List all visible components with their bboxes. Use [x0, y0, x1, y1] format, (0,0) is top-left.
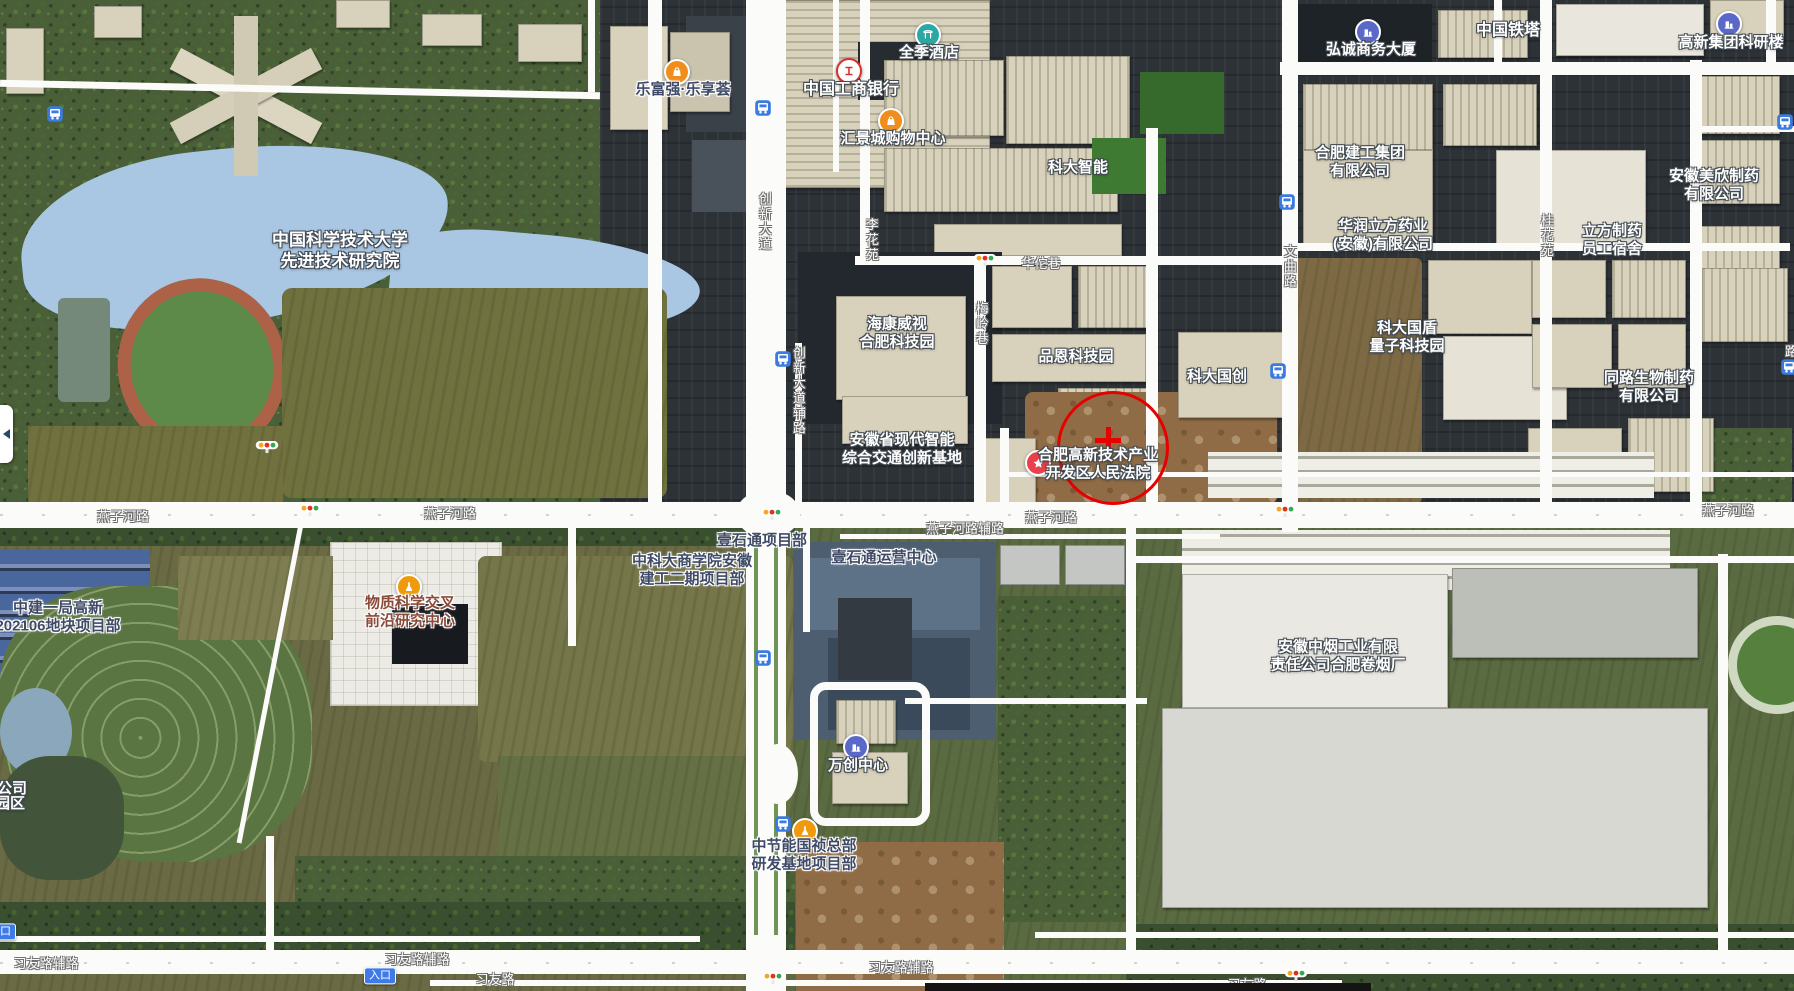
entrance-badge: 入口 [0, 923, 16, 940]
poi-pinen-tech-park[interactable]: 品恩科技园 [1038, 348, 1113, 366]
poi-gaoxin-group-research-bldg[interactable]: 高新集团科研楼 [1678, 34, 1783, 52]
poi-lefuqiang-lexianghui[interactable]: 乐富强·乐享荟 [636, 81, 731, 99]
poi-china-tower[interactable]: 中国铁塔 [1476, 21, 1540, 41]
poi-ustc-bizschool-project[interactable]: 中科大商学院安徽 建工二期项目部 [632, 553, 752, 590]
road-xiyou-fulu-2: 习友路辅路 [384, 952, 449, 968]
traffic-light-icon [299, 503, 322, 521]
road-lihua-yuan: 李花苑 [863, 218, 879, 263]
coordinate-bar: 经度 纬度 查询 [925, 983, 1371, 991]
bus-stop-icon[interactable] [775, 351, 792, 368]
poi-smart-transport-innovation-base[interactable]: 安徽省现代智能 综合交通创新基地 [842, 432, 962, 469]
poi-icbc-bank[interactable]: 中国工商银行 [803, 80, 899, 100]
road-guihua-yuan: 桂花苑 [1538, 214, 1554, 259]
poi-zhongjian-yiju-project[interactable]: 中建一局高新 202106地块项目部 [0, 600, 121, 637]
poi-quantum-tech-park[interactable]: 科大国盾 量子科技园 [1369, 320, 1444, 357]
poi-lifang-pharma-dorm[interactable]: 立方制药 员工宿舍 [1582, 223, 1642, 260]
bus-stop-icon[interactable] [755, 650, 772, 667]
road-yanzihe-3: 燕子河路 [1025, 510, 1077, 526]
poi-ji-hotel[interactable]: 全季酒店 [899, 44, 959, 62]
road-chuangxin-ave-fulu: 创新大道辅路 [790, 346, 806, 436]
poi-wanchuang-center[interactable]: 万创中心 [828, 757, 888, 775]
poi-hikvision-hefei-park[interactable]: 海康威视 合肥科技园 [859, 316, 934, 353]
poi-hefei-construction-group[interactable]: 合肥建工集团 有限公司 [1315, 145, 1405, 182]
road-yanzihe-1: 燕子河路 [97, 509, 149, 525]
road-yanzihe-fulu: 燕子河路辅路 [926, 521, 1004, 537]
poi-hongcheng-business-tower[interactable]: 弘诚商务大厦 [1326, 41, 1416, 59]
road-clipped-right: 路 [1782, 345, 1794, 360]
road-xiyou-fulu-1: 习友路辅路 [13, 956, 78, 972]
bus-stop-icon[interactable] [1270, 363, 1287, 380]
entrance-badge: 入口 [364, 967, 396, 984]
poi-anhui-tobacco-factory[interactable]: 安徽中烟工业有限 责任公司合肥卷烟厂 [1270, 639, 1405, 676]
poi-cecep-guozhen-project[interactable]: 中节能国祯总部 研发基地项目部 [751, 838, 856, 875]
road-yanzihe-2: 燕子河路 [424, 506, 476, 522]
poi-yishitong-project[interactable]: 壹石通项目部 [717, 532, 807, 550]
map-labels: 中国科学技术大学 先进技术研究院乐富强·乐享荟中国工商银行全季酒店汇景城购物中心… [0, 0, 1794, 991]
bus-stop-icon[interactable] [47, 106, 64, 123]
road-meiling-lane: 梅岭巷 [973, 302, 989, 347]
bus-stop-icon[interactable] [1777, 114, 1794, 131]
road-yanzihe-4: 燕子河路 [1702, 503, 1754, 519]
road-xiyou-fulu-3: 习友路辅路 [868, 960, 933, 976]
poi-keda-guochuang[interactable]: 科大国创 [1187, 368, 1247, 386]
bus-stop-icon[interactable] [775, 816, 792, 833]
poi-ustc-advanced-institute[interactable]: 中国科学技术大学 先进技术研究院 [272, 230, 408, 271]
poi-yishitong-ops-center[interactable]: 壹石通运营中心 [831, 549, 936, 567]
road-xiyou-1: 习友路 [475, 972, 514, 988]
traffic-light-icon [974, 253, 997, 271]
poi-huijingcheng-mall[interactable]: 汇景城购物中心 [840, 130, 945, 148]
traffic-light-icon [1274, 504, 1297, 522]
poi-physical-science-frontier-center[interactable]: 物质科学交叉 前沿研究中心 [365, 595, 455, 632]
road-huatuo-lane: 华佗巷 [1021, 256, 1060, 272]
bus-stop-icon[interactable] [755, 100, 772, 117]
poi-tonglu-bio-pharma[interactable]: 同路生物制药 有限公司 [1604, 370, 1694, 407]
poi-keda-intelligent[interactable]: 科大智能 [1048, 159, 1108, 177]
collapse-arrow-icon [3, 429, 10, 439]
poi-anhui-meixin-pharma[interactable]: 安徽美欣制药 有限公司 [1669, 168, 1759, 205]
road-chuangxin-ave: 创新大道 [756, 192, 772, 252]
panel-collapse-tab[interactable] [0, 405, 13, 463]
traffic-light-icon [762, 971, 785, 989]
poi-hightech-zone-court[interactable]: 合肥高新技术产业 开发区人民法院 [1038, 447, 1158, 484]
road-wenqu: 文曲路 [1281, 245, 1297, 290]
bus-stop-icon[interactable] [1279, 194, 1296, 211]
poi-huarun-lifang-pharma[interactable]: 华润立方药业 (安徽)有限公司 [1333, 218, 1433, 255]
map-canvas[interactable]: 中国科学技术大学 先进技术研究院乐富强·乐享荟中国工商银行全季酒店汇景城购物中心… [0, 0, 1794, 991]
poi-clipped-park[interactable]: 园区 [0, 795, 25, 813]
bus-stop-icon[interactable] [1781, 359, 1794, 376]
traffic-light-icon [256, 440, 279, 458]
traffic-light-icon [761, 507, 784, 525]
